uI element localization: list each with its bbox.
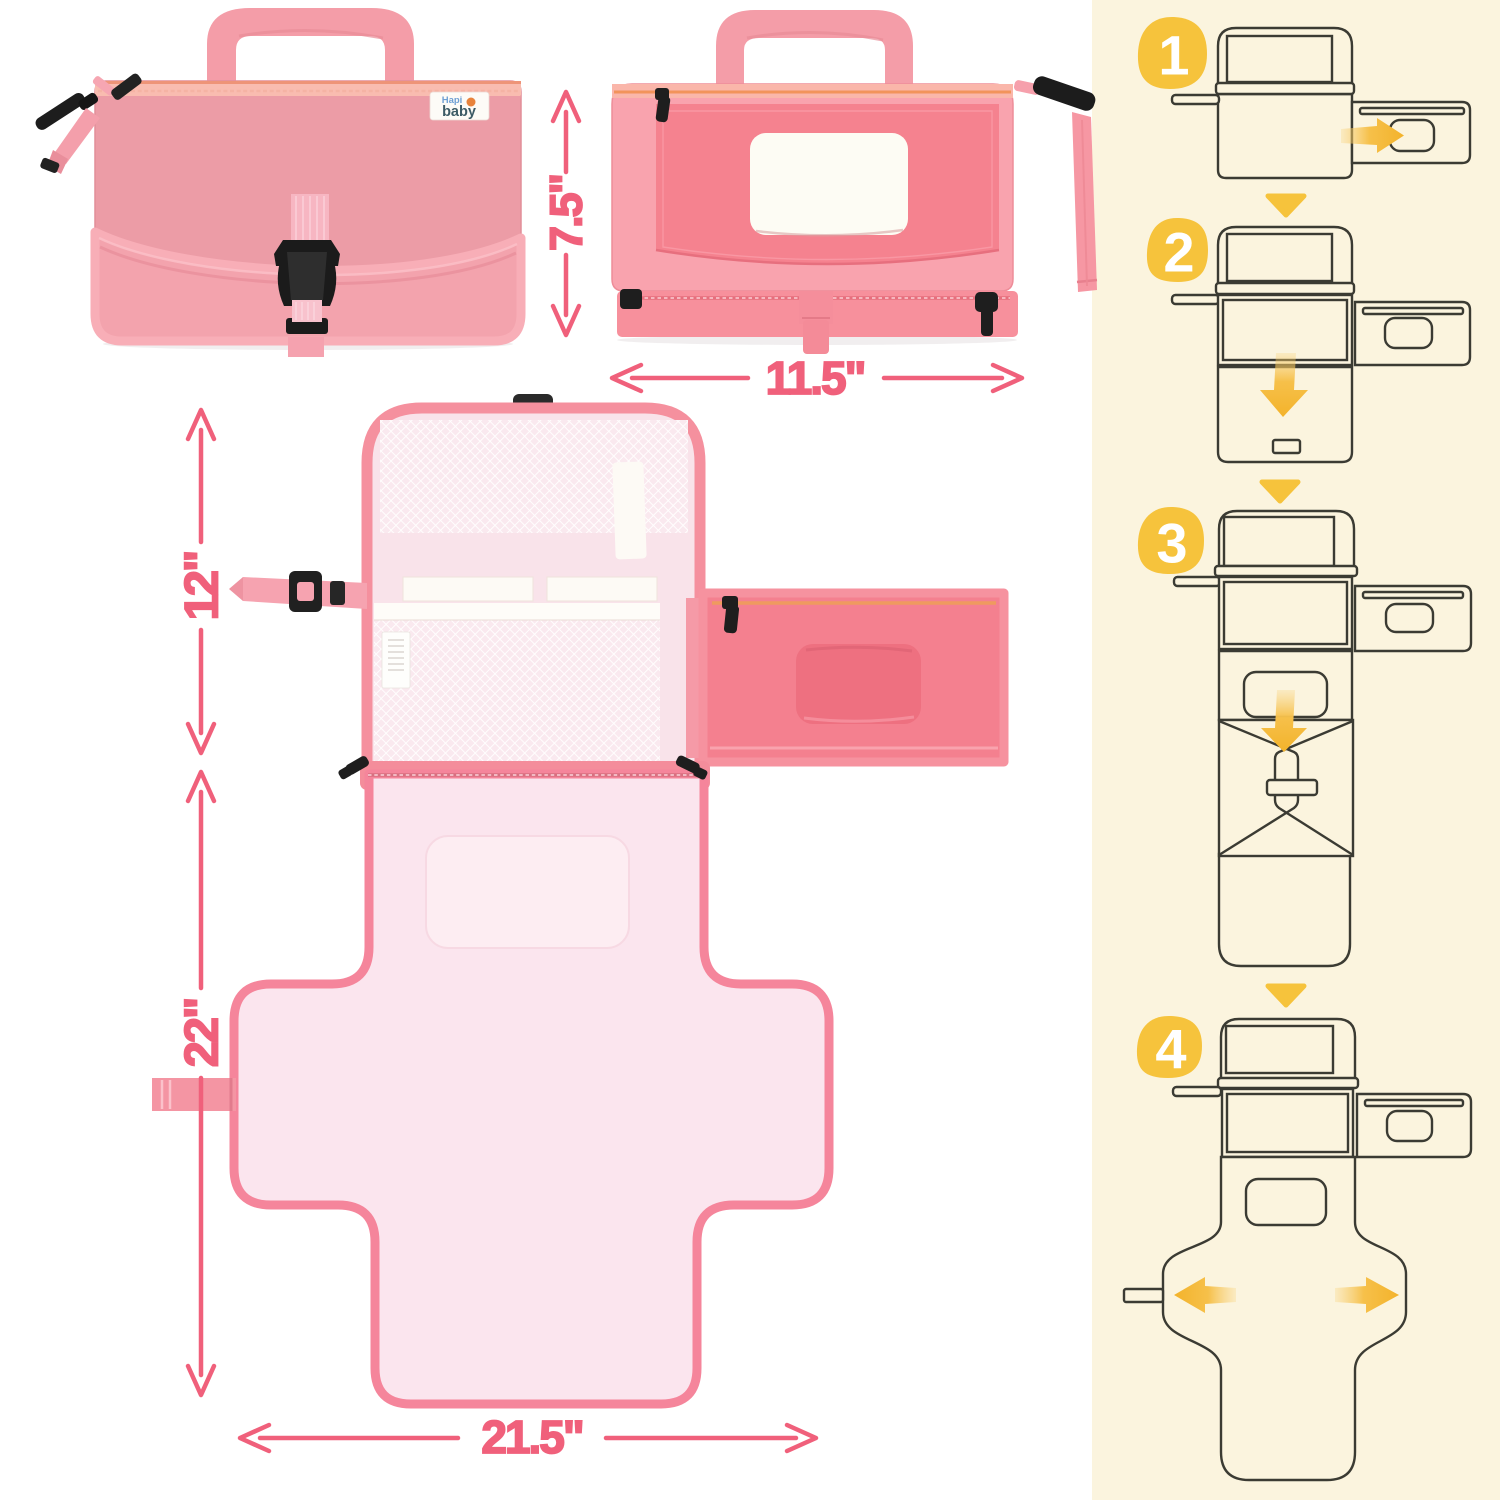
svg-text:12": 12" bbox=[175, 552, 228, 621]
svg-text:4: 4 bbox=[1155, 1018, 1186, 1081]
svg-text:21.5": 21.5" bbox=[481, 1411, 582, 1463]
svg-text:11.5": 11.5" bbox=[766, 352, 865, 404]
svg-text:3: 3 bbox=[1156, 512, 1187, 575]
svg-text:22": 22" bbox=[175, 999, 228, 1068]
svg-text:baby: baby bbox=[442, 104, 476, 120]
svg-text:1: 1 bbox=[1158, 24, 1189, 87]
svg-text:2: 2 bbox=[1163, 221, 1194, 284]
svg-text:7.5": 7.5" bbox=[541, 175, 592, 251]
